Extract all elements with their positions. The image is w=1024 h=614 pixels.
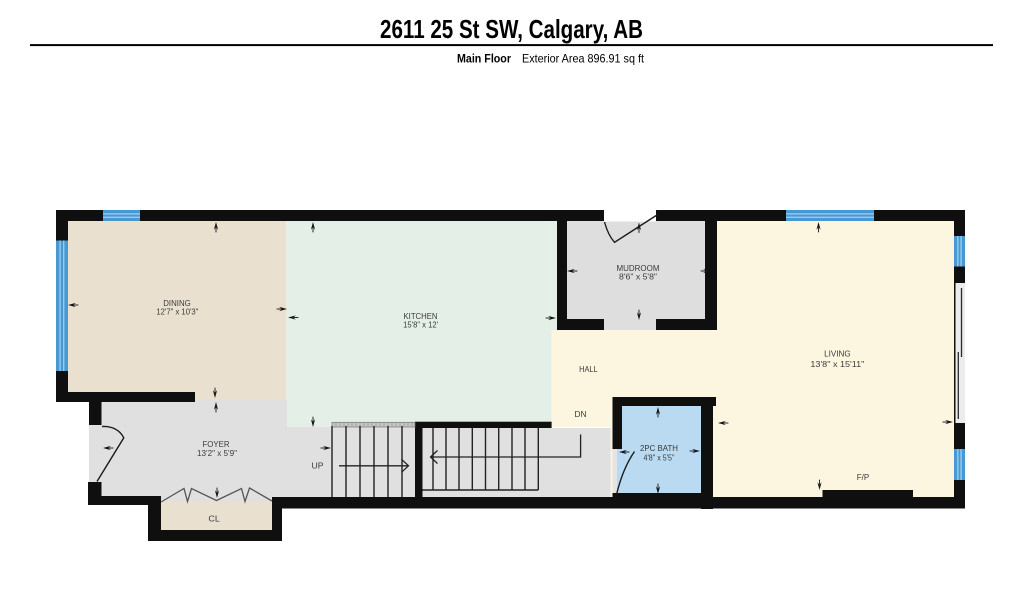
svg-text:HALL: HALL [579, 364, 598, 374]
svg-text:DN: DN [575, 409, 587, 419]
svg-text:2PC BATH: 2PC BATH [640, 443, 678, 453]
svg-text:UP: UP [312, 461, 324, 471]
svg-text:F/P: F/P [857, 472, 870, 482]
svg-text:MUDROOM: MUDROOM [617, 263, 660, 273]
svg-text:CL: CL [208, 514, 220, 524]
svg-text:15'8" x 12': 15'8" x 12' [403, 321, 438, 330]
svg-text:13'2" x 5'9": 13'2" x 5'9" [197, 449, 237, 458]
svg-text:Main Floor: Main Floor [457, 52, 511, 66]
svg-text:KITCHEN: KITCHEN [404, 311, 438, 321]
svg-text:2611 25 St SW, Calgary, AB: 2611 25 St SW, Calgary, AB [380, 14, 643, 44]
svg-text:13'8" x 15'11": 13'8" x 15'11" [810, 360, 864, 369]
svg-text:8'6" x 5'8": 8'6" x 5'8" [619, 273, 657, 282]
svg-text:12'7" x 10'3": 12'7" x 10'3" [156, 307, 198, 316]
svg-text:Exterior Area 896.91 sq ft: Exterior Area 896.91 sq ft [522, 52, 645, 66]
svg-text:4'8" x 5'5": 4'8" x 5'5" [644, 454, 675, 463]
svg-text:LIVING: LIVING [824, 349, 851, 359]
svg-text:FOYER: FOYER [203, 439, 230, 449]
